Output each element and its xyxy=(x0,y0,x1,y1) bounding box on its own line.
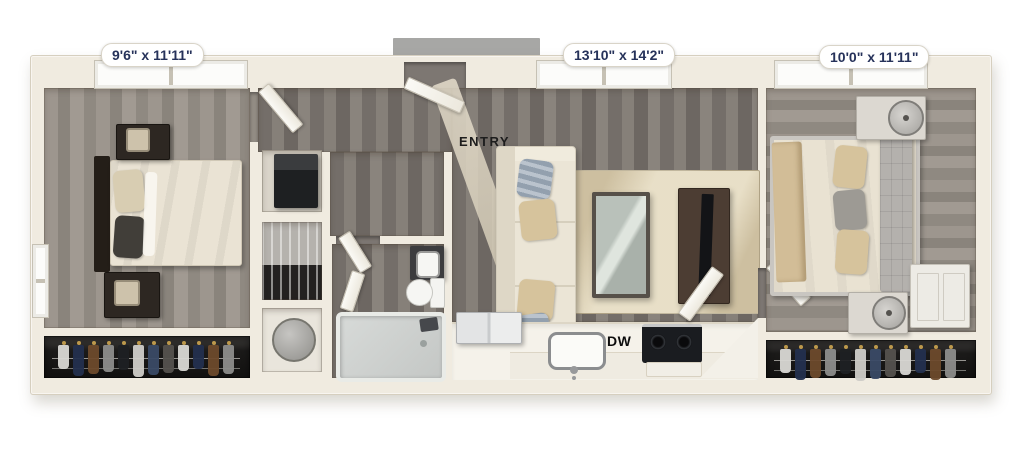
range-burner-left xyxy=(650,334,666,350)
bathtub-drain xyxy=(420,340,427,347)
hanging-garment xyxy=(223,345,234,374)
dresser xyxy=(910,264,970,328)
hanging-garment xyxy=(795,349,806,380)
hanging-garment xyxy=(148,345,159,375)
hanging-garment xyxy=(163,345,174,373)
coffee-table xyxy=(592,192,650,298)
bed2-pillow-gray xyxy=(832,189,867,232)
bed1-headboard xyxy=(94,156,110,272)
bed2-headboard xyxy=(880,130,912,292)
bed2-throw-blanket xyxy=(772,142,807,283)
linen-shelves xyxy=(262,222,322,300)
hanging-garment xyxy=(840,349,851,374)
entry-label: ENTRY xyxy=(459,134,510,149)
bed1-pillow-beige xyxy=(112,169,146,213)
living-room-dimensions-label: 13'10" x 14'2" xyxy=(563,43,675,67)
oven-front xyxy=(646,362,702,377)
hanging-garment xyxy=(58,345,69,369)
hanging-garment xyxy=(885,349,896,377)
range-burner-right xyxy=(676,334,692,350)
hanging-garment xyxy=(780,349,791,373)
bedroom1-lamp-bottom xyxy=(114,280,140,306)
hanging-garment xyxy=(930,349,941,380)
hanging-garment xyxy=(118,345,129,370)
bedroom2-lamp-bottom xyxy=(872,296,906,330)
bedroom1-dimensions-label: 9'6" x 11'11" xyxy=(101,43,204,67)
bedroom1-side-window xyxy=(32,244,49,318)
hanging-garment xyxy=(88,345,99,374)
hallway-floor xyxy=(330,152,444,236)
hanging-garment xyxy=(133,345,144,377)
hanging-garment xyxy=(945,349,956,378)
hanging-garment xyxy=(870,349,881,379)
floor-plan-canvas: 9'6" x 11'11" 13'10" x 14'2" 10'0" x 11'… xyxy=(0,0,1024,455)
bed1-pillow-dark xyxy=(113,215,146,259)
hanging-garment xyxy=(178,345,189,371)
bedroom2-dimensions-label: 10'0" x 11'11" xyxy=(819,45,929,69)
bed2-pillow-tan-bottom xyxy=(835,229,870,275)
bedroom1-lamp-top xyxy=(126,128,150,152)
hanging-garment xyxy=(103,345,114,372)
dresser-panel-left xyxy=(917,273,939,321)
bedroom2-closet xyxy=(766,340,976,378)
kitchen-faucet xyxy=(570,366,578,374)
towel xyxy=(419,317,439,332)
hanging-garment xyxy=(208,345,219,376)
sofa-pillow-striped-top xyxy=(516,158,554,200)
bedroom2-door-opening xyxy=(758,268,766,318)
hanging-garment xyxy=(73,345,84,376)
hanging-garment xyxy=(915,349,926,373)
refrigerator xyxy=(456,312,522,344)
water-heater xyxy=(272,318,316,362)
hanging-garment xyxy=(810,349,821,378)
hanging-garment xyxy=(193,345,204,369)
toilet-bowl xyxy=(406,279,433,306)
hanging-garment xyxy=(855,349,866,381)
hanging-garment xyxy=(825,349,836,376)
washer-dryer-unit xyxy=(274,154,318,208)
bedroom2-lamp-top xyxy=(888,100,924,136)
bedroom1-door-opening xyxy=(250,92,258,142)
bedroom1-closet xyxy=(44,336,250,378)
kitchen-sink xyxy=(548,332,606,370)
dishwasher-label: DW xyxy=(607,333,631,349)
vanity-sink xyxy=(416,251,440,278)
hanging-garment xyxy=(900,349,911,375)
dresser-panel-right xyxy=(943,273,965,321)
bed2-pillow-tan-top xyxy=(832,144,868,189)
sofa-pillow-tan-top xyxy=(518,198,558,242)
